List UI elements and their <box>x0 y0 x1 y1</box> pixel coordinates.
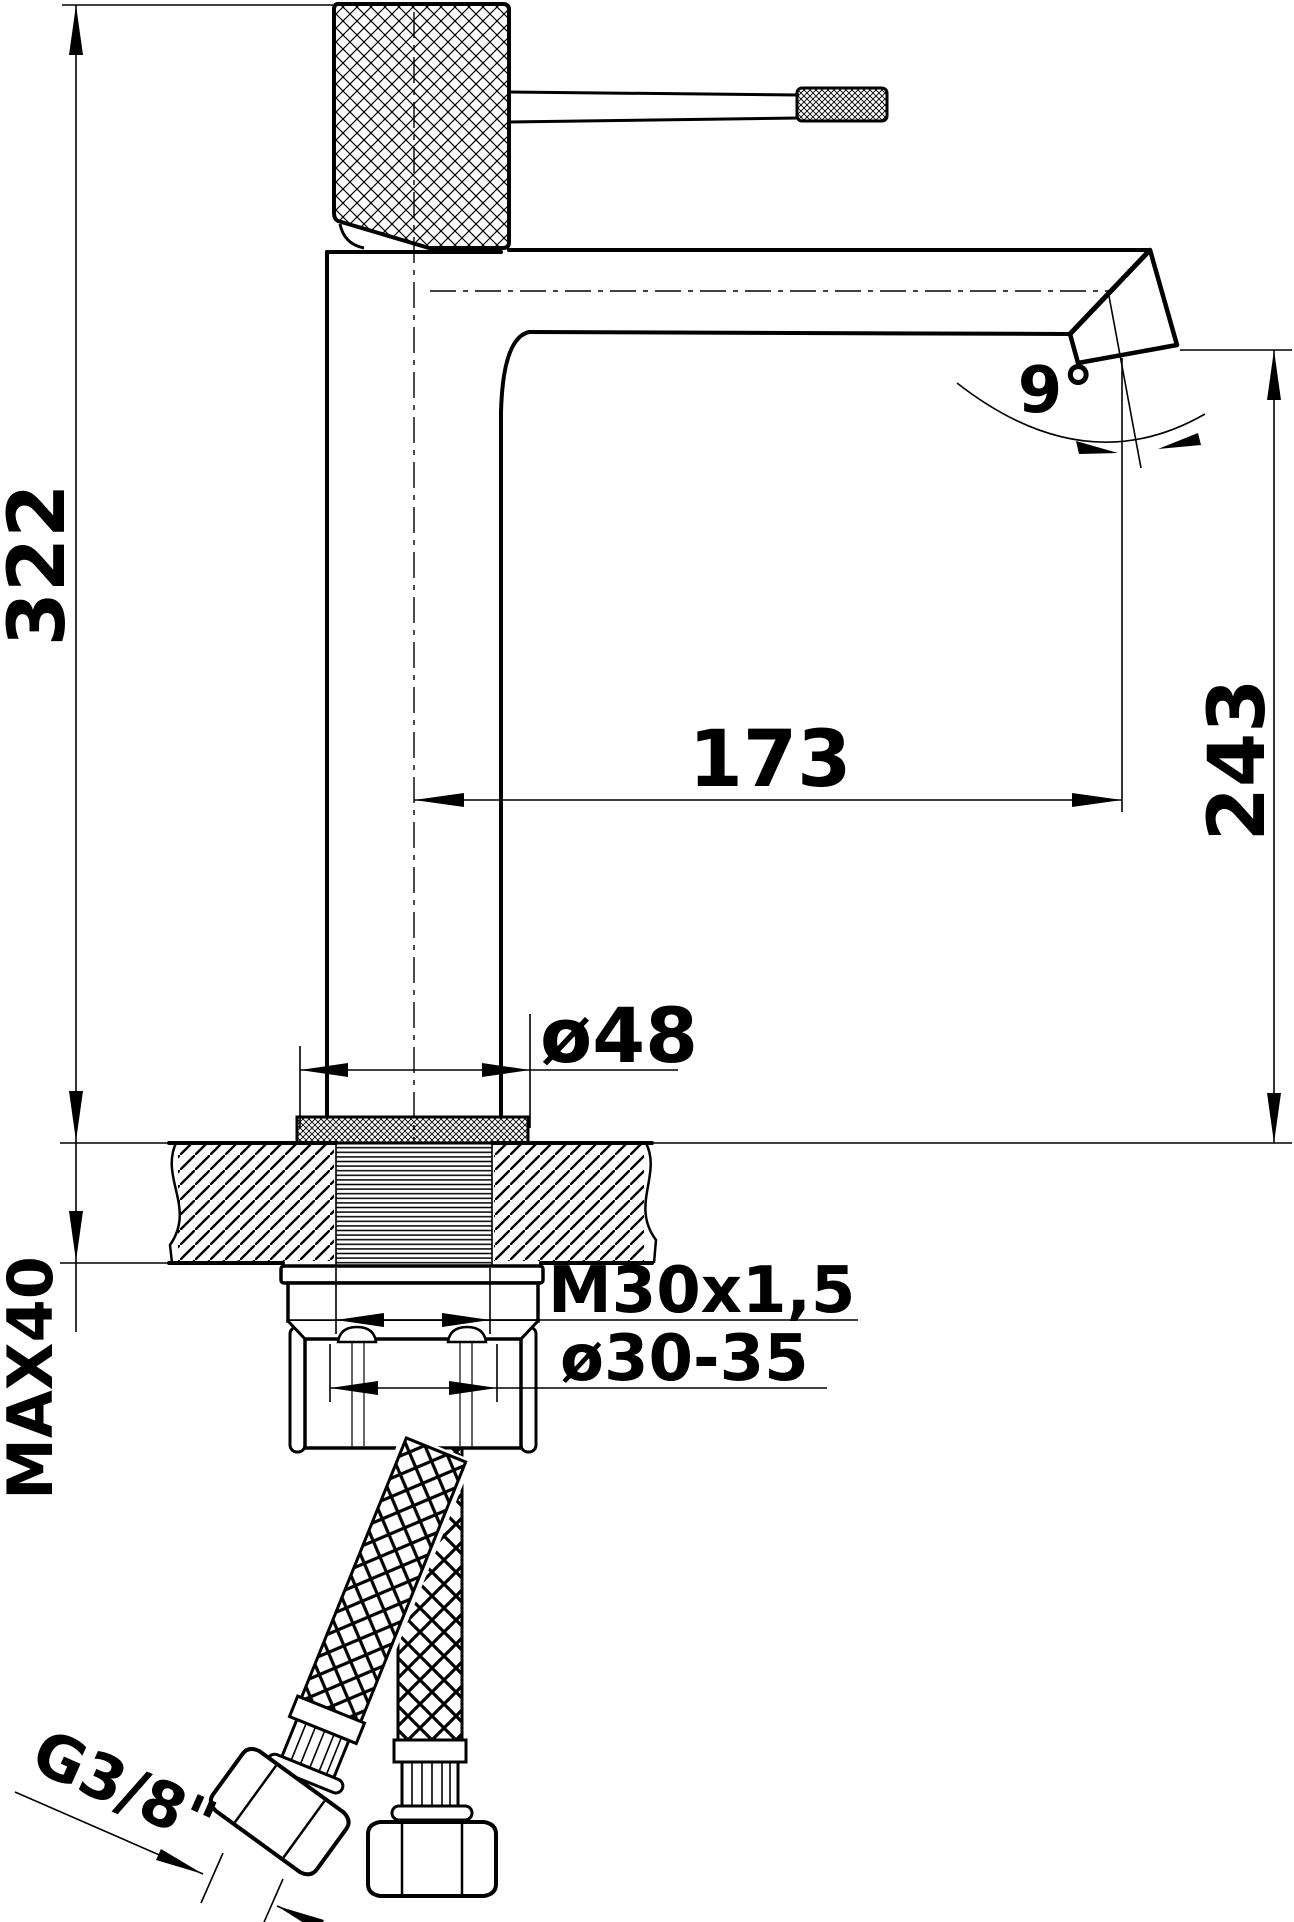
outlet-height-label: 243 <box>1193 679 1283 842</box>
mounting-fixing-set <box>281 1266 543 1452</box>
handle-knurled-sleeve <box>334 4 509 248</box>
fixing-tab-right <box>521 1327 536 1452</box>
thread-label: M30x1,5 <box>548 1254 855 1328</box>
background <box>0 0 1294 1922</box>
faucet-technical-drawing: 9° 173 243 ø48 <box>0 0 1294 1922</box>
hole-diameter-label: ø30-35 <box>560 1322 809 1396</box>
fixing-stud-right <box>448 1327 486 1342</box>
base-knurled-ring <box>297 1117 528 1143</box>
total-height-label: 322 <box>0 484 83 647</box>
base-diameter-label: ø48 <box>540 991 698 1080</box>
mounting-nut-upper <box>288 1283 538 1321</box>
hex-nut-right <box>368 1822 496 1896</box>
hose-ring-right <box>392 1806 472 1820</box>
mounting-nut-body <box>305 1339 521 1448</box>
threaded-shank <box>336 1143 492 1265</box>
lever-grip-knurl <box>797 88 887 121</box>
reach-label: 173 <box>689 715 852 805</box>
angle-label: 9° <box>1018 354 1095 428</box>
fixing-stud-left <box>338 1327 376 1342</box>
deck-hatch-right <box>494 1145 644 1261</box>
deck-hatch-left <box>178 1145 334 1261</box>
washer <box>281 1266 543 1283</box>
mounting-nut-taper <box>288 1321 538 1339</box>
fixing-tab-left <box>290 1327 305 1452</box>
max-thickness-label: MAX40 <box>0 1256 67 1500</box>
hose-collar-right <box>394 1740 466 1762</box>
drawing-canvas: 9° 173 243 ø48 <box>0 0 1294 1922</box>
